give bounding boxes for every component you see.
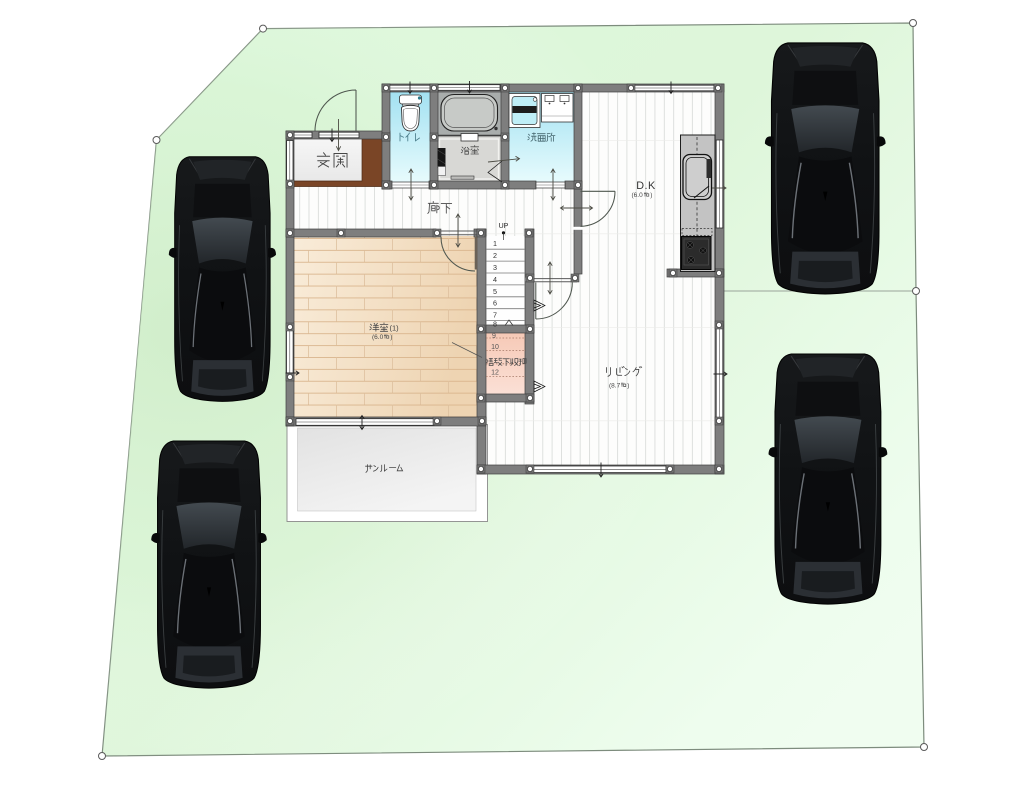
svg-text:2: 2 — [493, 251, 497, 260]
svg-text:(6.0: (6.0 — [632, 192, 644, 199]
svg-text:8: 8 — [493, 320, 497, 329]
svg-text:): ) — [390, 334, 392, 341]
svg-text:(6.0: (6.0 — [372, 334, 384, 341]
svg-text:): ) — [627, 382, 629, 389]
svg-text:4: 4 — [493, 275, 497, 284]
svg-text:12: 12 — [491, 370, 499, 377]
svg-text:5: 5 — [493, 287, 497, 296]
svg-text:7: 7 — [493, 311, 497, 320]
svg-text:6: 6 — [493, 299, 497, 308]
svg-text:(8.7: (8.7 — [609, 382, 621, 389]
svg-text:): ) — [650, 192, 652, 199]
svg-text:(1): (1) — [390, 324, 400, 333]
svg-text:1: 1 — [493, 239, 497, 248]
svg-text:UP: UP — [499, 223, 509, 230]
svg-text:D.K: D.K — [636, 180, 656, 192]
svg-text:9: 9 — [492, 333, 496, 340]
svg-text:3: 3 — [493, 263, 497, 272]
svg-text:10: 10 — [491, 344, 499, 351]
